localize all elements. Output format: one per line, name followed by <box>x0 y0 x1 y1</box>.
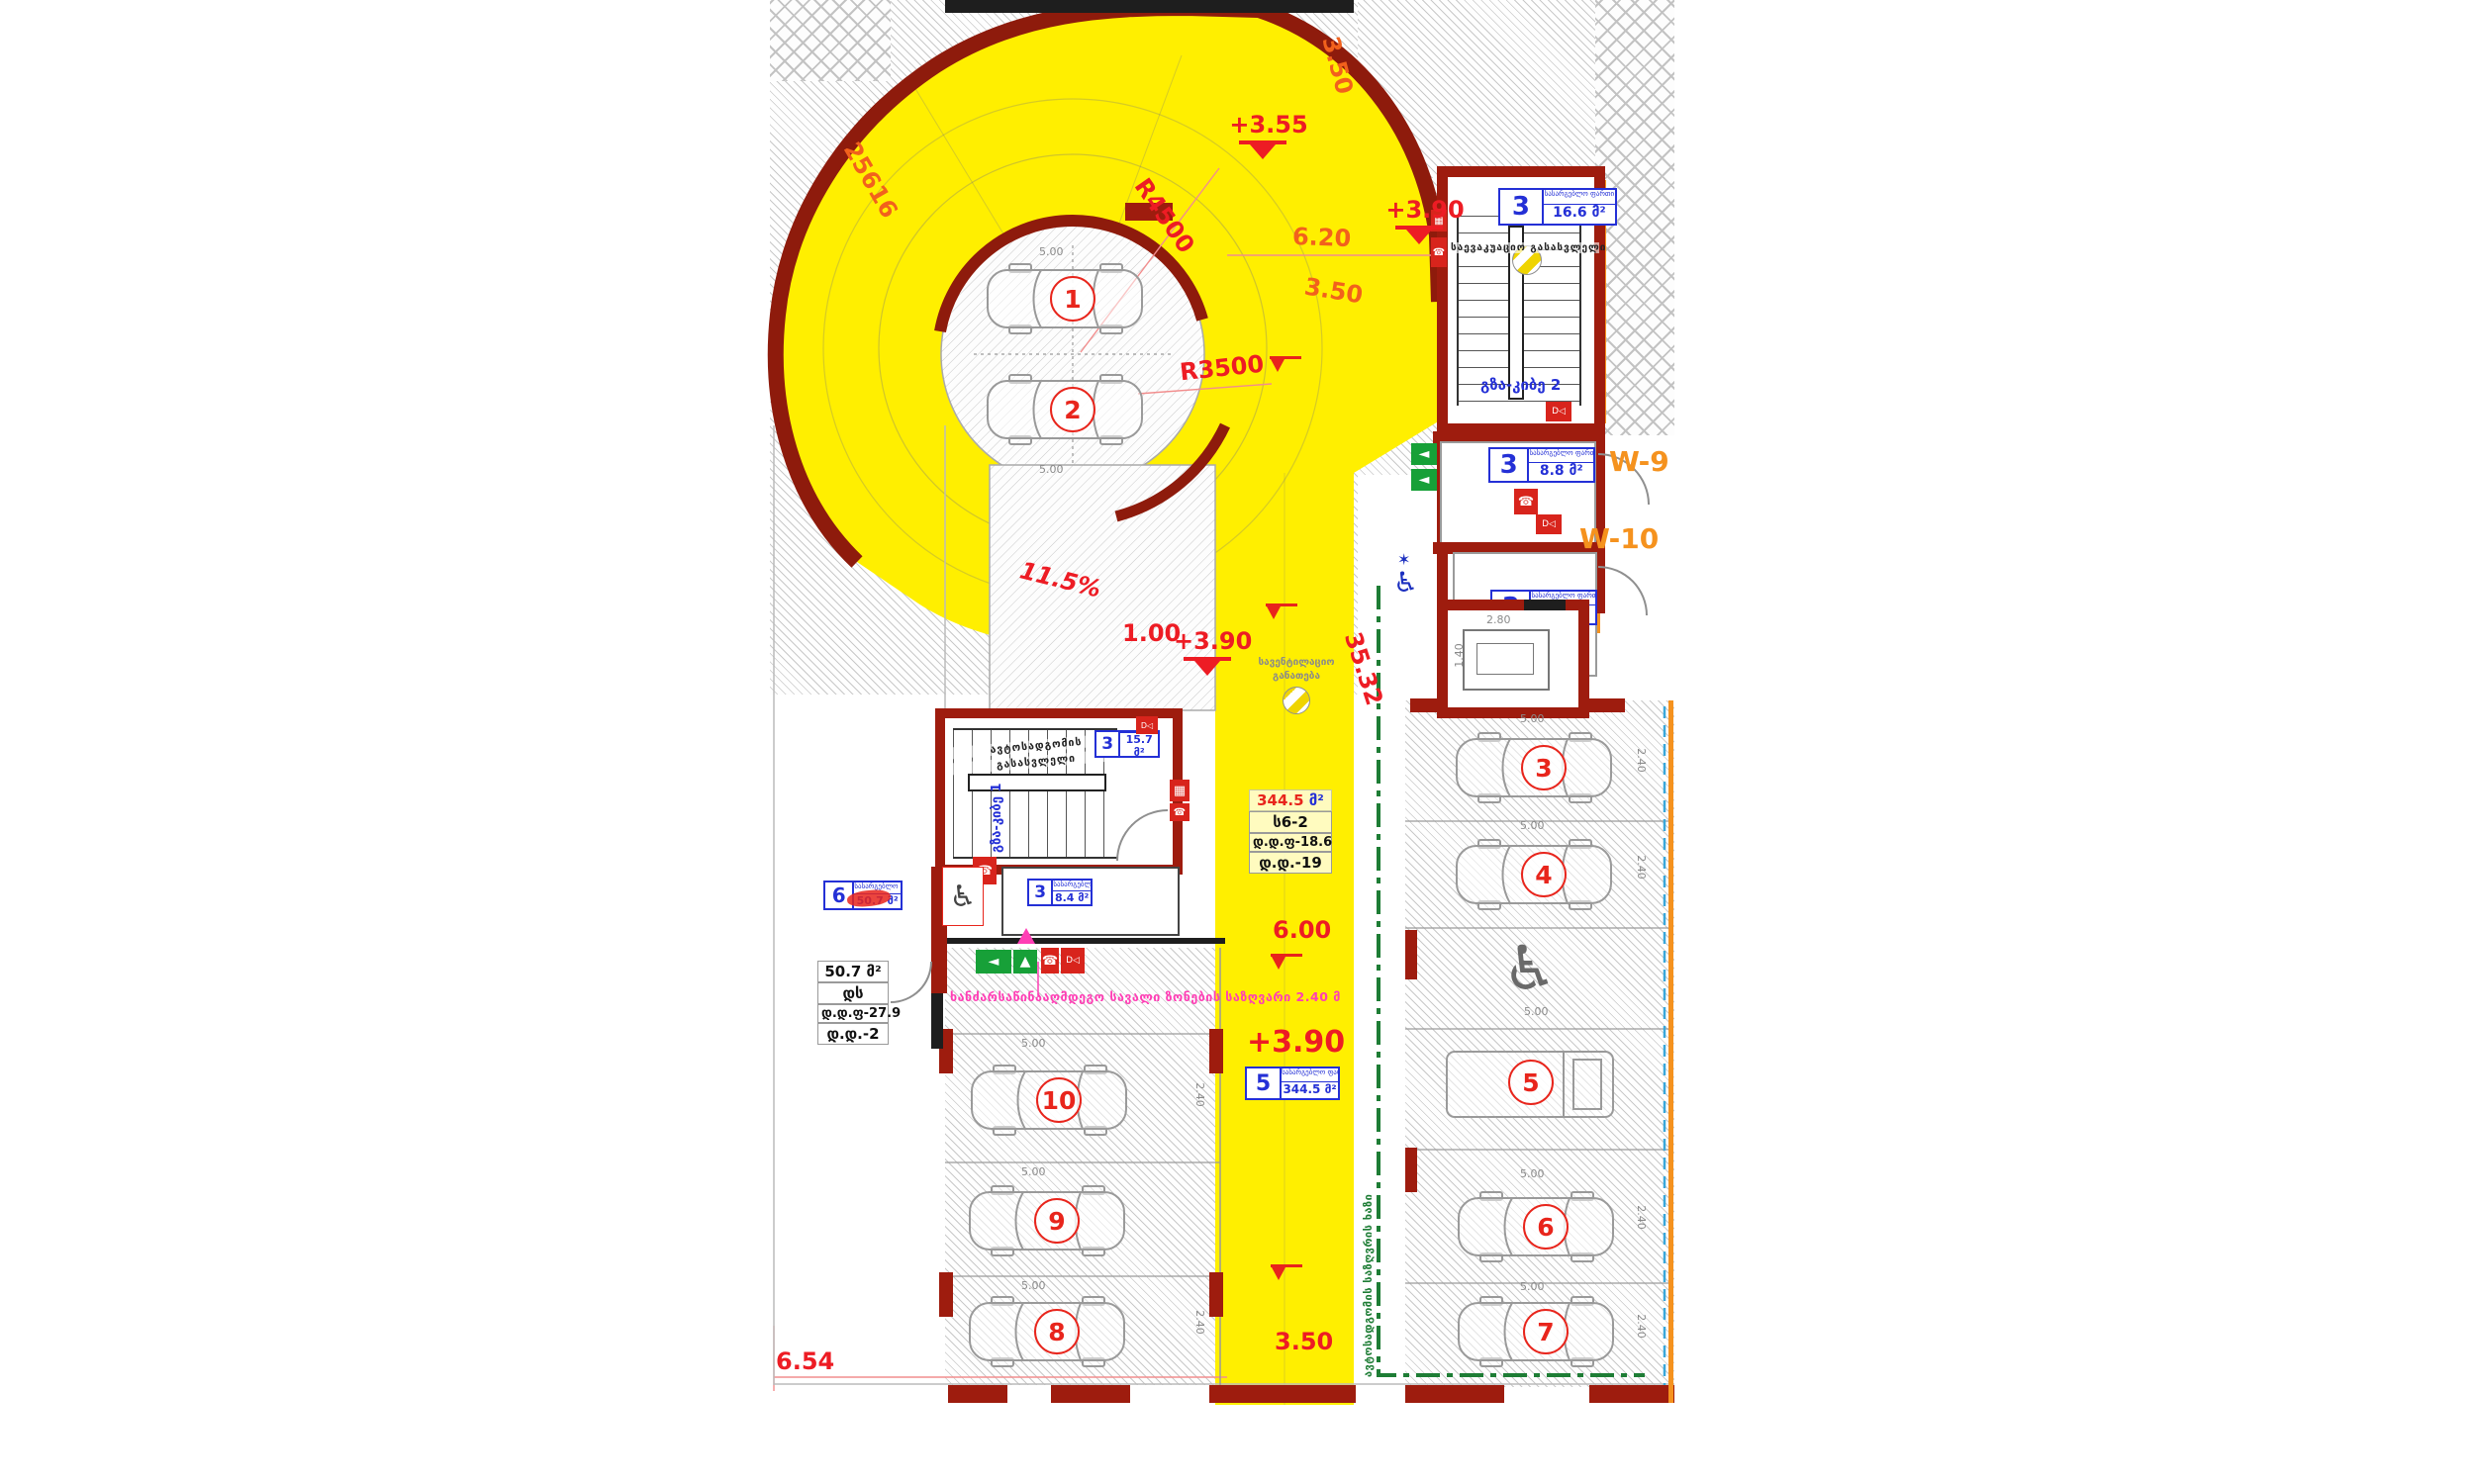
floor-plan-canvas: საევაკუაციო გასასვლელი გზა-კიბე 2 D◁ ▦ ☎… <box>0 0 2474 1484</box>
accessible-spot-icon: ♿ <box>1502 932 1558 1004</box>
spot-length-dim: 5.00 <box>1520 819 1545 832</box>
drain-marker <box>1270 356 1301 372</box>
drain-marker <box>1271 1264 1302 1280</box>
spot-length-dim: 5.00 <box>1021 1165 1046 1178</box>
spot-number-5: 5 <box>1508 1060 1554 1105</box>
room-number: 3 <box>1490 449 1529 481</box>
fire-extinguisher-icon: D◁ <box>1136 716 1158 734</box>
room-tag-w9: 3 სასარგებლო ფართი 8.8 მ² <box>1488 447 1595 483</box>
column <box>1209 1029 1223 1073</box>
room-caption: სასარგებლო ფართი <box>1282 1068 1338 1082</box>
room-tag-stair1: 3 სასარგებლო ფართი 15.7 მ² <box>1094 730 1160 758</box>
bottom-wall <box>1209 1385 1356 1403</box>
room-area: 8.4 მ² <box>1053 891 1091 904</box>
level-dim: +3.90 <box>1247 1025 1345 1060</box>
spot-width-dim: 2.40 <box>1193 1310 1206 1335</box>
fire-phone-icon: ☎ <box>1514 489 1538 514</box>
room-number: 3 <box>1500 190 1544 224</box>
magenta-arrow <box>1017 928 1035 944</box>
column <box>1405 1148 1417 1192</box>
spot-length-dim: 5.00 <box>1524 1005 1549 1018</box>
fire-zone-label: ხანძარსაწინააღმდეგო სავალი ზონების საზღვ… <box>950 989 1341 1004</box>
wheelchair-icon: ♿ <box>950 880 977 914</box>
boundary-label: ავტოსადგომის საზღვრის ხაზი <box>1362 1140 1375 1377</box>
evacuation-exit-label: საევაკუაციო გასასვლელი <box>1451 242 1599 253</box>
column <box>939 1272 953 1317</box>
room-tag-stair2: 3 სასარგებლო ფართი 16.6 მ² <box>1498 188 1617 226</box>
room-area: 8.8 მ² <box>1529 463 1593 481</box>
level-dim: +3.90 <box>1380 196 1471 224</box>
vent-opening-icon <box>1283 687 1310 714</box>
w9-label: W-9 <box>1609 445 1669 478</box>
room-number: 3 <box>1096 732 1120 756</box>
room-area: 16.6 მ² <box>1544 205 1615 224</box>
bottom-wall <box>1589 1385 1674 1403</box>
ramp-and-lines-layer <box>0 0 2474 1484</box>
ramp-info-box: 344.5 მ² ს6-2 დ.დ.ფ-18.6 დ.დ.-19 <box>1249 789 1332 874</box>
wall-dark <box>931 993 943 1049</box>
spot-length-dim: 5.00 <box>1021 1037 1046 1050</box>
spot-number-3: 3 <box>1521 745 1567 790</box>
elevator-car-inner <box>1476 643 1534 675</box>
spot-length-dim: 5.00 <box>1021 1279 1046 1292</box>
info-mark2: დ.დ.-19 <box>1249 852 1332 874</box>
up-arrow-icon: ▲ <box>1013 950 1037 974</box>
column <box>1405 930 1417 979</box>
width-dim: 6.54 <box>776 1347 834 1375</box>
level-arrow <box>1184 657 1231 676</box>
spot-length-dim: 5.00 <box>1520 712 1545 725</box>
elevator-width-dim: 2.80 <box>1486 613 1511 626</box>
spot-length-dim: 5.00 <box>1520 1167 1545 1180</box>
room-tag-ramp: 5 სასარგებლო ფართი 344.5 მ² <box>1245 1067 1340 1100</box>
w10-label: W-10 <box>1579 522 1659 555</box>
info-area: 344.5 მ² <box>1249 789 1332 811</box>
hydrant-icon: ▦ <box>1170 780 1189 801</box>
info-mark1: დ.დ.ფ-18.6 <box>1249 833 1332 852</box>
width-dim: 1.00 <box>1122 619 1181 647</box>
info-area: 50.7 მ² <box>817 961 889 982</box>
spot-number-2: 2 <box>1050 387 1095 432</box>
elevator-depth-dim: 1.40 <box>1453 643 1466 668</box>
stair1-name: გზა-კიბე 1 <box>990 744 1004 853</box>
spot-width-dim: 2.40 <box>1635 1314 1648 1339</box>
info-code: დს <box>817 982 889 1004</box>
fire-phone-icon: ☎ <box>1041 948 1059 974</box>
drain-marker <box>1271 954 1302 970</box>
fire-extinguisher-icon: D◁ <box>1536 514 1562 534</box>
spot-width-dim: 2.40 <box>1193 1082 1206 1107</box>
vent-label-line2: განათება <box>1243 671 1350 683</box>
room-tag-84: 3 სასარგებლო ფართი 8.4 მ² <box>1027 879 1093 906</box>
vestibule-wall <box>938 938 1225 944</box>
exit-sign-icon: ◄ <box>976 950 1011 974</box>
wheelchair-stall: ♿ <box>942 867 984 926</box>
room-caption: სასარგებლო ფართი <box>1053 881 1091 891</box>
spot-number-6: 6 <box>1523 1204 1569 1250</box>
spot-length-dim: 5.00 <box>1039 463 1064 476</box>
spot-number-4: 4 <box>1521 852 1567 897</box>
fire-extinguisher-icon: D◁ <box>1546 402 1571 421</box>
drain-marker <box>1266 603 1297 619</box>
top-edge-wall <box>945 0 1354 13</box>
accessible-route-icon: ♿ <box>1393 566 1418 599</box>
info-mark2: დ.დ.-2 <box>817 1023 889 1045</box>
inner-court-rect <box>990 465 1215 710</box>
room-number: 3 <box>1029 881 1053 904</box>
stair1-stringer <box>968 774 1106 791</box>
info-mark1: დ.დ.ფ-27.9 <box>817 1004 889 1023</box>
exit-arrow-icon: ◄ <box>1411 443 1437 465</box>
room-area: 344.5 მ² <box>1282 1082 1338 1098</box>
spot-length-dim: 5.00 <box>1039 245 1064 258</box>
width-dim: 6.20 <box>1292 223 1352 252</box>
spot-number-10: 10 <box>1036 1077 1082 1123</box>
spot-width-dim: 2.40 <box>1635 748 1648 773</box>
room-area: 15.7 მ² <box>1120 733 1158 759</box>
spot-width-dim: 2.40 <box>1635 855 1648 880</box>
exit-arrow-icon: ◄ <box>1411 469 1437 491</box>
level-dim: +3.55 <box>1223 111 1314 139</box>
spot-number-8: 8 <box>1034 1309 1080 1354</box>
room-caption: სასარგებლო ფართი <box>1529 449 1593 463</box>
area-unit: მ² <box>1309 791 1324 809</box>
phone-icon: ☎ <box>1170 803 1189 821</box>
level-arrow <box>1395 226 1443 244</box>
elevator-wall-dark <box>1524 600 1566 610</box>
left-info-box: 50.7 მ² დს დ.დ.ფ-27.9 დ.დ.-2 <box>817 961 889 1045</box>
level-dim: +3.90 <box>1174 627 1252 655</box>
bottom-wall <box>948 1385 1007 1403</box>
room-number: 5 <box>1247 1068 1282 1098</box>
width-dim: 3.50 <box>1275 1328 1333 1355</box>
column <box>1209 1272 1223 1317</box>
bottom-wall <box>1051 1385 1130 1403</box>
width-dim: 6.00 <box>1273 916 1331 944</box>
fire-extinguisher-icon: D◁ <box>1061 948 1085 974</box>
spot-length-dim: 5.00 <box>1520 1280 1545 1293</box>
spot-number-1: 1 <box>1050 276 1095 322</box>
level-arrow <box>1239 140 1286 159</box>
vent-label-line1: სავენტილაციო <box>1243 657 1350 669</box>
spot-number-9: 9 <box>1034 1198 1080 1244</box>
area-number: 344.5 <box>1257 791 1303 809</box>
info-code: ს6-2 <box>1249 811 1332 833</box>
room-caption: სასარგებლო ფართი <box>1544 190 1615 205</box>
bottom-wall <box>1405 1385 1504 1403</box>
spot-number-7: 7 <box>1523 1309 1569 1354</box>
spot-width-dim: 2.40 <box>1635 1205 1648 1230</box>
right-facade-line <box>1668 700 1673 1403</box>
stair2-name: გზა-კიბე 2 <box>1480 376 1561 394</box>
